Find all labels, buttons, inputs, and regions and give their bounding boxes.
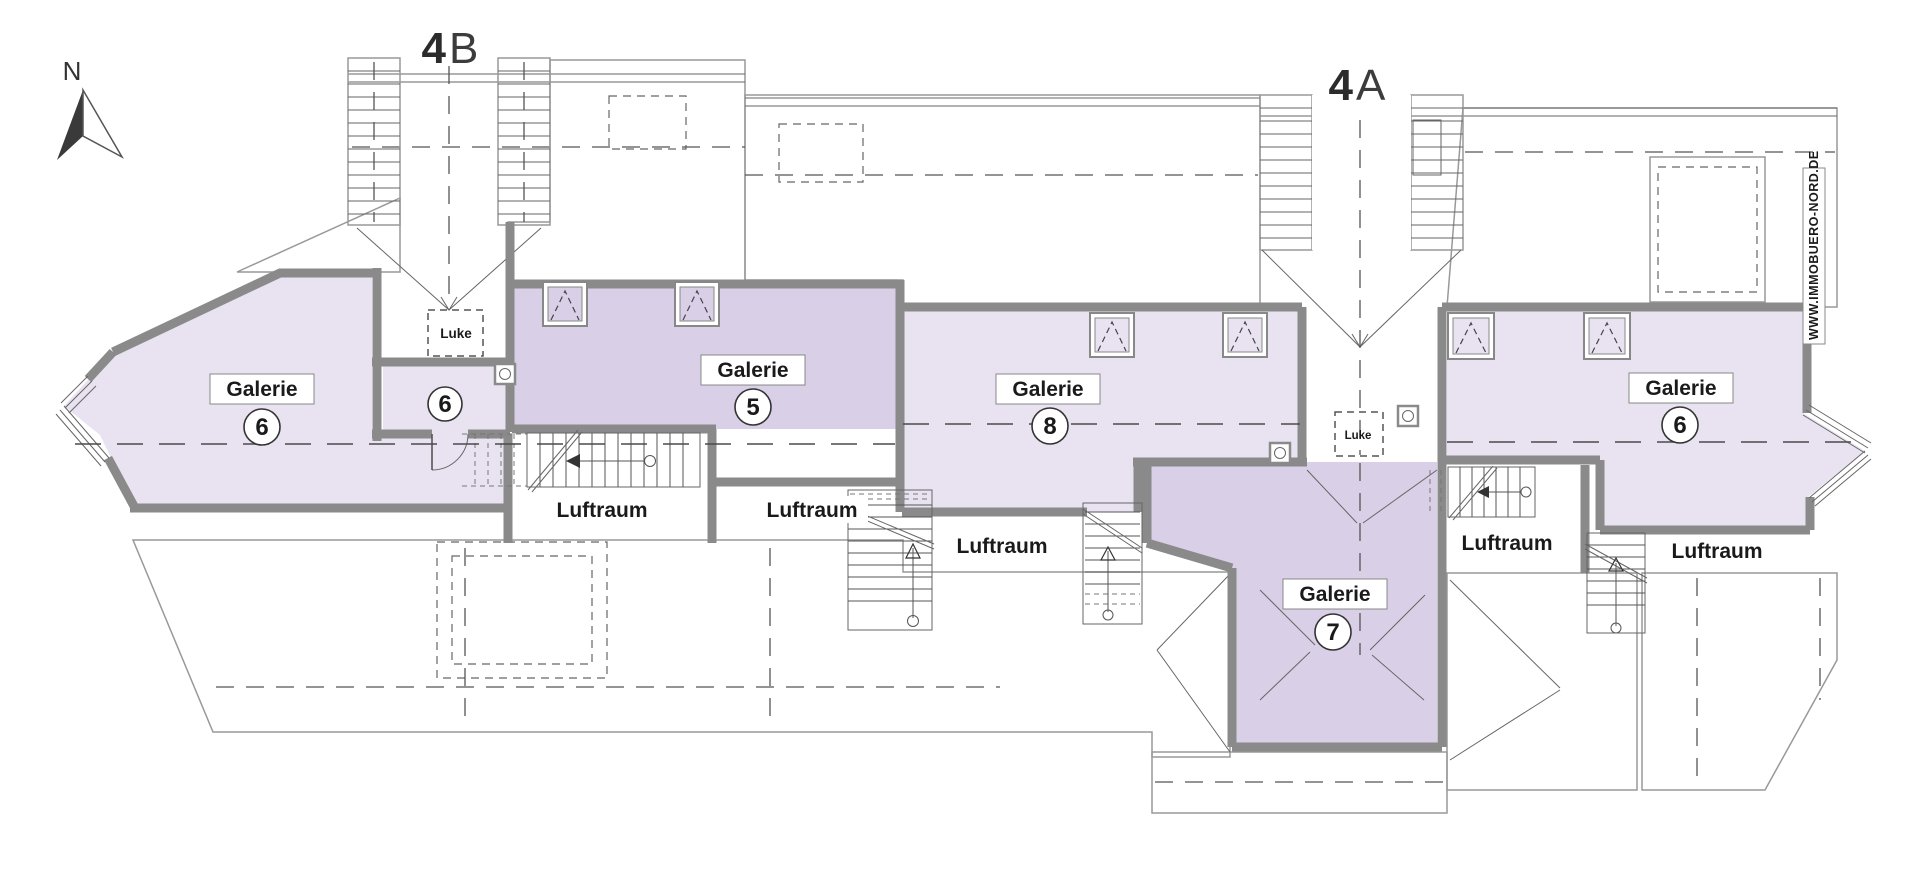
roof-dashed-dormer-3-inner (452, 556, 592, 664)
label-luke-left: Luke (440, 326, 472, 341)
number-room6-small: 6 (438, 391, 451, 418)
stair-3 (1083, 503, 1142, 624)
floor-plan-drawing: Galerie 6 6 Galerie 5 Galerie 8 Galerie … (0, 0, 1920, 888)
skylight-galerie5-2 (675, 282, 719, 326)
roof-band-over-galerie8 (745, 95, 1260, 307)
vent-3 (1398, 406, 1418, 426)
skylight-galerie6R-1 (1448, 313, 1494, 359)
number-galerie5: 5 (746, 394, 759, 421)
roof-bottom-left (133, 540, 1230, 757)
dormer-4a-left-rungs (1260, 108, 1312, 238)
label-luftraum1: Luftraum (557, 499, 648, 522)
label-galerie6-left: Galerie (226, 378, 297, 401)
watermark: WWW.IMMOBUERO-NORD.DE (1803, 150, 1825, 344)
roof-band-over-galerie6-right (1447, 108, 1837, 307)
roof-dormer-right-dashed (1658, 167, 1757, 292)
label-galerie7: Galerie (1299, 583, 1370, 606)
watermark-text: WWW.IMMOBUERO-NORD.DE (1807, 150, 1821, 340)
roof-dashed-dormer-1 (609, 96, 686, 149)
label-luftraum5: Luftraum (1672, 540, 1763, 563)
dormer-4a-gable-white (1312, 95, 1411, 250)
label-galerie6-right: Galerie (1645, 377, 1716, 400)
number-galerie7: 7 (1326, 619, 1339, 646)
label-luke-right: Luke (1345, 430, 1372, 442)
roof-dormer-right-outline (1650, 157, 1765, 302)
roof-band-over-galerie5 (508, 60, 745, 282)
vent-1 (495, 364, 515, 384)
label-luftraum3: Luftraum (957, 535, 1048, 558)
skylight-galerie8-1 (1090, 313, 1134, 357)
label-4b-number: 4 (422, 24, 447, 73)
roof-top-left-triangle (237, 198, 400, 272)
roof-dashed-dormer-3 (437, 542, 607, 678)
skylight-galerie5-1 (543, 282, 587, 326)
floor-plan-page: Galerie 6 6 Galerie 5 Galerie 8 Galerie … (0, 0, 1920, 888)
vent-2 (1270, 443, 1290, 463)
roof-bottom-right (1642, 573, 1837, 790)
dormer-4b-arrow (441, 297, 457, 310)
label-galerie8: Galerie (1012, 378, 1083, 401)
label-4a-number: 4 (1329, 61, 1354, 110)
north-arrow-light-half (83, 90, 122, 157)
skylight-galerie8-2 (1223, 313, 1267, 357)
label-luftraum4: Luftraum (1462, 532, 1553, 555)
skylight-galerie6R-2 (1584, 313, 1630, 359)
room-galerie6-right (1447, 307, 1865, 530)
label-4b-letter: B (449, 24, 478, 73)
label-galerie5: Galerie (717, 359, 788, 382)
number-galerie6-left: 6 (255, 414, 268, 441)
label-4a-letter: A (1356, 61, 1386, 110)
dormer-4a-right-rungs (1411, 108, 1463, 238)
number-galerie8: 8 (1043, 413, 1056, 440)
roof-dashed-dormer-2 (779, 124, 863, 182)
north-label: N (63, 56, 82, 86)
north-arrow-dark-half (57, 90, 83, 160)
label-luftraum2: Luftraum (767, 499, 858, 522)
number-galerie6-right: 6 (1673, 412, 1686, 439)
north-arrow: N (57, 56, 122, 160)
